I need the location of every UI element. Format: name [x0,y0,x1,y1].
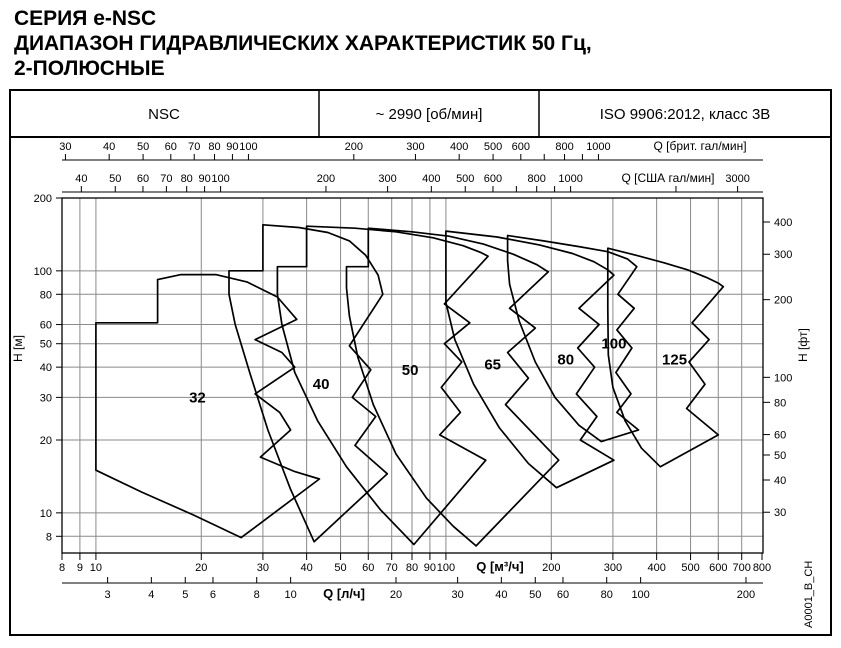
svg-text:20: 20 [390,589,402,601]
svg-text:80: 80 [774,397,786,409]
svg-text:60: 60 [362,562,374,574]
document-code: A0001_B_CH [803,561,815,628]
svg-text:40: 40 [495,589,507,601]
region-label-65: 65 [484,357,501,374]
x-axis-imp-gpm: 304050607080901002003004005006008001000Q… [59,139,763,160]
x-axis-us-gpm: 4050607080901002003004005006008001000300… [62,171,763,192]
svg-text:90: 90 [226,141,238,153]
svg-text:80: 80 [406,562,418,574]
header-series: NSC [148,106,180,123]
svg-text:30: 30 [774,507,786,519]
svg-text:300: 300 [406,141,424,153]
svg-text:6: 6 [210,589,216,601]
svg-text:10: 10 [284,589,296,601]
svg-text:300: 300 [774,249,792,261]
svg-text:500: 500 [484,141,502,153]
header-speed: ~ 2990 [об/мин] [376,106,483,123]
svg-text:60: 60 [774,430,786,442]
svg-text:40: 40 [75,173,87,185]
svg-text:20: 20 [195,562,207,574]
x-axis-m3h: 8910203040506070809010020030040050060070… [59,553,771,574]
svg-text:40: 40 [103,141,115,153]
svg-text:9: 9 [77,562,83,574]
svg-text:1000: 1000 [586,141,610,153]
svg-text:60: 60 [557,589,569,601]
svg-text:200: 200 [542,562,560,574]
svg-text:10: 10 [90,562,102,574]
svg-text:50: 50 [774,450,786,462]
svg-text:300: 300 [604,562,622,574]
svg-text:70: 70 [188,141,200,153]
svg-text:80: 80 [40,289,52,301]
region-label-125: 125 [662,352,687,369]
region-80 [446,231,614,488]
svg-text:1000: 1000 [558,173,582,185]
region-outline-80 [446,231,614,488]
svg-text:100: 100 [774,372,792,384]
svg-text:400: 400 [450,141,468,153]
svg-text:100: 100 [437,562,455,574]
region-outline-40 [229,225,387,542]
svg-text:700: 700 [733,562,751,574]
region-outline-32 [96,275,320,538]
svg-text:400: 400 [774,217,792,229]
svg-text:80: 80 [181,173,193,185]
svg-text:20: 20 [40,435,52,447]
y-axis-label-ft: H [фт] [796,328,810,362]
x-axis-ls: 3456810203040506080100200Q [л/ч] [62,577,763,601]
x-axis-label-m3h: Q [м³/ч] [476,559,524,574]
svg-text:100: 100 [34,266,52,278]
svg-text:40: 40 [40,362,52,374]
svg-text:80: 80 [208,141,220,153]
svg-text:40: 40 [774,475,786,487]
svg-text:70: 70 [160,173,172,185]
svg-text:90: 90 [198,173,210,185]
svg-text:4: 4 [148,589,154,601]
svg-text:800: 800 [555,141,573,153]
hydraulic-range-chart: NSC ~ 2990 [об/мин] ISO 9906:2012, класс… [0,0,841,648]
svg-text:600: 600 [484,173,502,185]
svg-text:90: 90 [424,562,436,574]
region-label-50: 50 [402,362,419,379]
svg-text:200: 200 [737,589,755,601]
svg-text:40: 40 [301,562,313,574]
svg-text:800: 800 [528,173,546,185]
svg-text:50: 50 [137,141,149,153]
chart-content: 3240506580100125304050607080901002003004… [34,139,793,601]
svg-text:400: 400 [647,562,665,574]
svg-text:200: 200 [317,173,335,185]
svg-text:50: 50 [40,339,52,351]
catalog-page: СЕРИЯ e-NSC ДИАПАЗОН ГИДРАВЛИЧЕСКИХ ХАРА… [0,0,841,648]
svg-text:600: 600 [512,141,530,153]
svg-text:5: 5 [182,589,188,601]
x-axis-label-ls: Q [л/ч] [323,586,365,601]
svg-text:70: 70 [386,562,398,574]
svg-text:100: 100 [631,589,649,601]
region-label-80: 80 [557,352,574,369]
svg-text:200: 200 [774,295,792,307]
svg-text:10: 10 [40,508,52,520]
svg-text:400: 400 [422,173,440,185]
svg-text:300: 300 [378,173,396,185]
svg-text:30: 30 [40,392,52,404]
x-axis-label-imp: Q [брит. гал/мин] [653,139,746,153]
svg-text:3: 3 [105,589,111,601]
svg-text:60: 60 [40,320,52,332]
svg-text:200: 200 [345,141,363,153]
svg-text:100: 100 [239,141,257,153]
region-40 [229,225,387,542]
svg-text:800: 800 [753,562,771,574]
svg-text:600: 600 [709,562,727,574]
svg-text:3000: 3000 [725,173,749,185]
svg-text:8: 8 [46,531,52,543]
svg-text:500: 500 [456,173,474,185]
svg-text:50: 50 [334,562,346,574]
svg-text:500: 500 [681,562,699,574]
region-label-32: 32 [189,389,206,406]
y-axis-m: 200100806050403020108 [34,193,62,543]
y-axis-label-m: H [м] [11,335,25,362]
svg-text:8: 8 [59,562,65,574]
svg-text:60: 60 [165,141,177,153]
region-outline-50 [277,226,488,544]
svg-text:30: 30 [59,141,71,153]
region-32 [96,275,320,538]
svg-text:8: 8 [254,589,260,601]
svg-text:100: 100 [211,173,229,185]
region-labels: 3240506580100125 [189,336,687,407]
svg-text:80: 80 [601,589,613,601]
y-axis-ft: 4003002001008060504030 [763,217,792,519]
region-label-100: 100 [601,336,626,353]
region-label-40: 40 [313,376,330,393]
svg-text:200: 200 [34,193,52,205]
region-50 [277,226,488,544]
x-axis-label-us: Q [США гал/мин] [621,171,714,185]
header-standard: ISO 9906:2012, класс 3В [600,106,771,123]
svg-text:50: 50 [109,173,121,185]
svg-text:30: 30 [257,562,269,574]
svg-text:60: 60 [137,173,149,185]
svg-text:30: 30 [451,589,463,601]
svg-text:50: 50 [529,589,541,601]
